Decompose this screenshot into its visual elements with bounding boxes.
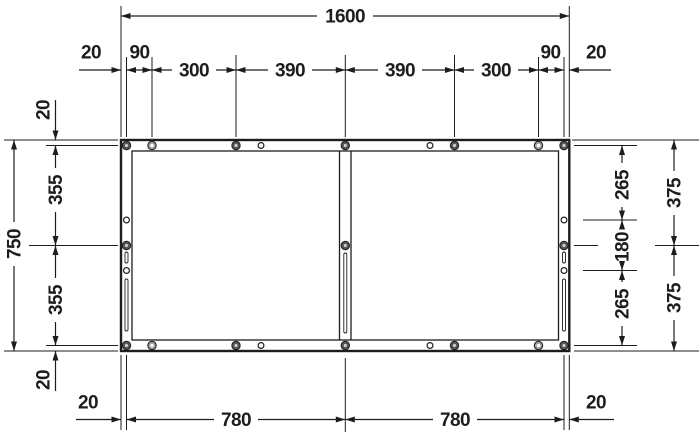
arrowhead-icon bbox=[671, 246, 677, 256]
dim-label-top-90-right: 90 bbox=[541, 43, 561, 64]
dim-label-180: 180 bbox=[613, 232, 634, 262]
dim-label-top-20-left: 20 bbox=[81, 43, 101, 64]
arrowhead-icon bbox=[619, 220, 625, 230]
dim-label-375-lower: 375 bbox=[665, 282, 686, 313]
screw-center-dot bbox=[563, 144, 566, 147]
dim-label-265-upper: 265 bbox=[613, 169, 634, 200]
screw-center-dot bbox=[344, 244, 347, 247]
arrowhead-icon bbox=[336, 67, 346, 73]
arrowhead-icon bbox=[619, 146, 625, 156]
fasteners bbox=[122, 141, 568, 349]
arrowhead-icon bbox=[336, 417, 346, 423]
arrowhead-icon bbox=[619, 336, 625, 346]
arrowhead-icon bbox=[539, 67, 549, 73]
arrowhead-icon bbox=[619, 211, 625, 221]
screw-center-dot bbox=[537, 344, 541, 348]
dim-label-750: 750 bbox=[5, 229, 26, 259]
slot-icon bbox=[125, 279, 128, 331]
arrowhead-icon bbox=[152, 67, 162, 73]
arrowhead-icon bbox=[345, 417, 355, 423]
arrowhead-icon bbox=[555, 417, 565, 423]
screw-center-dot bbox=[537, 144, 541, 148]
arrowhead-icon bbox=[560, 13, 570, 19]
screw-center-dot bbox=[150, 344, 154, 348]
arrowhead-icon bbox=[671, 236, 677, 246]
dim-label-top-300-right: 300 bbox=[481, 61, 511, 82]
arrowhead-icon bbox=[455, 67, 465, 73]
dim-label-bottom-780-left: 780 bbox=[221, 410, 251, 431]
technical-drawing-svg: 1600 20 90 300 390 390 300 90 20 20 780 … bbox=[0, 0, 700, 435]
slot-icon bbox=[344, 253, 347, 333]
arrowhead-icon bbox=[11, 342, 17, 352]
slot-icon bbox=[125, 252, 128, 263]
dim-label-bottom-780-right: 780 bbox=[440, 410, 470, 431]
dim-label-total-width: 1600 bbox=[325, 7, 365, 28]
hole-icon bbox=[427, 343, 433, 349]
screw-center-dot bbox=[235, 344, 238, 347]
arrowhead-icon bbox=[112, 67, 122, 73]
arrowhead-icon bbox=[345, 67, 355, 73]
arrowhead-icon bbox=[569, 417, 579, 423]
dim-label-left-355-upper: 355 bbox=[46, 174, 67, 205]
arrowhead-icon bbox=[671, 140, 677, 150]
hole-icon bbox=[258, 143, 264, 149]
hole-icon bbox=[427, 143, 433, 149]
dim-label-265-lower: 265 bbox=[613, 288, 634, 319]
screw-center-dot bbox=[235, 144, 238, 147]
technical-drawing-canvas: 1600 20 90 300 390 390 300 90 20 20 780 … bbox=[0, 0, 700, 435]
arrowhead-icon bbox=[619, 271, 625, 281]
dim-label-top-300-left: 300 bbox=[179, 61, 209, 82]
arrowhead-icon bbox=[671, 342, 677, 352]
hole-icon bbox=[561, 268, 567, 274]
hole-icon bbox=[561, 217, 567, 223]
arrowhead-icon bbox=[53, 351, 59, 361]
screw-center-dot bbox=[344, 144, 347, 147]
arrowhead-icon bbox=[143, 67, 153, 73]
hole-icon bbox=[124, 268, 130, 274]
arrowhead-icon bbox=[227, 67, 237, 73]
screw-center-dot bbox=[453, 144, 456, 147]
dim-label-top-390-right: 390 bbox=[385, 61, 415, 82]
screw-center-dot bbox=[125, 144, 128, 147]
hole-icon bbox=[124, 217, 130, 223]
dimension-lines bbox=[14, 16, 674, 420]
arrowheads bbox=[11, 13, 677, 423]
arrowhead-icon bbox=[112, 417, 122, 423]
arrowhead-icon bbox=[529, 67, 539, 73]
dim-label-top-90-left: 90 bbox=[130, 43, 150, 64]
arrowhead-icon bbox=[569, 67, 579, 73]
dim-label-bottom-20-left: 20 bbox=[78, 393, 98, 414]
dim-label-left-20-bottom: 20 bbox=[34, 370, 55, 390]
arrowhead-icon bbox=[555, 67, 565, 73]
hole-icon bbox=[258, 343, 264, 349]
arrowhead-icon bbox=[236, 67, 246, 73]
arrowhead-icon bbox=[53, 246, 59, 256]
dim-label-left-355-lower: 355 bbox=[46, 284, 67, 315]
slot-icon bbox=[563, 252, 566, 263]
screw-center-dot bbox=[150, 144, 154, 148]
dim-label-375-upper: 375 bbox=[665, 177, 686, 208]
screw-center-dot bbox=[125, 344, 128, 347]
screw-center-dot bbox=[563, 244, 566, 247]
slot-icon bbox=[563, 279, 566, 331]
screw-center-dot bbox=[563, 344, 566, 347]
arrowhead-icon bbox=[445, 67, 455, 73]
dim-label-top-20-right: 20 bbox=[586, 43, 606, 64]
arrowhead-icon bbox=[53, 131, 59, 141]
dim-label-left-20-top: 20 bbox=[34, 100, 55, 120]
screw-center-dot bbox=[125, 244, 128, 247]
arrowhead-icon bbox=[53, 236, 59, 246]
arrowhead-icon bbox=[53, 146, 59, 156]
arrowhead-icon bbox=[127, 417, 137, 423]
arrowhead-icon bbox=[121, 13, 131, 19]
dim-label-top-390-left: 390 bbox=[275, 61, 305, 82]
dim-label-bottom-20-right: 20 bbox=[586, 393, 606, 414]
screw-center-dot bbox=[344, 344, 347, 347]
screw-center-dot bbox=[453, 344, 456, 347]
arrowhead-icon bbox=[53, 336, 59, 346]
arrowhead-icon bbox=[11, 140, 17, 150]
arrowhead-icon bbox=[127, 67, 137, 73]
